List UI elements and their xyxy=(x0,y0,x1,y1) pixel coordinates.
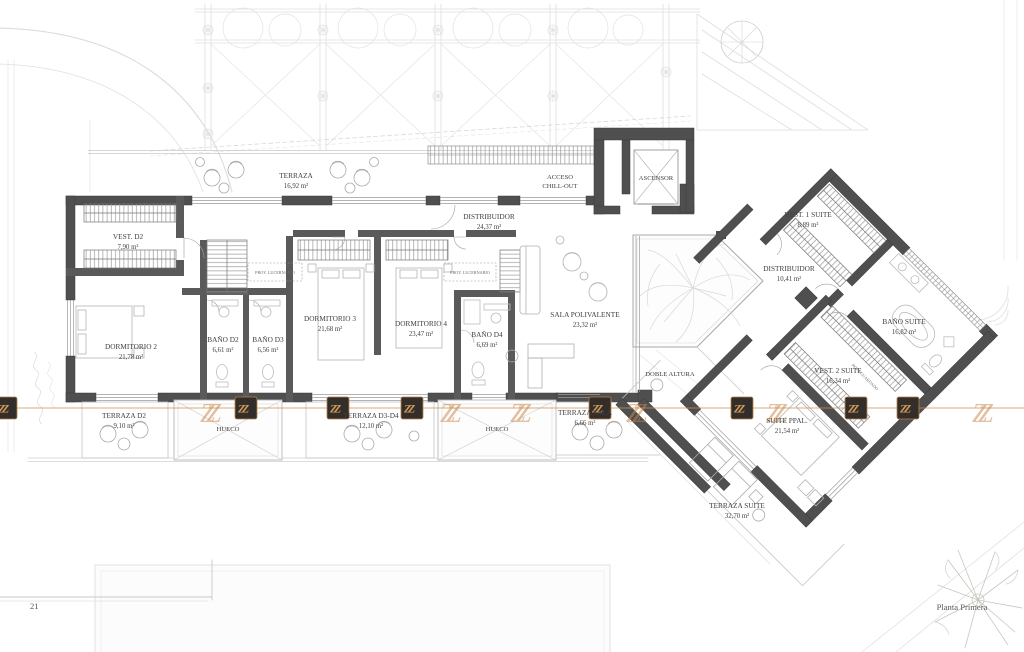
svg-text:21,68 m²: 21,68 m² xyxy=(318,326,342,333)
label-suite-ppal: SUITE PPAL. xyxy=(766,416,808,425)
svg-text:6,61 m²: 6,61 m² xyxy=(213,347,234,354)
svg-text:32,70 m²: 32,70 m² xyxy=(725,513,749,520)
garden-tree-icon xyxy=(935,550,1022,648)
svg-text:ZZ: ZZ xyxy=(972,398,994,428)
watermark-badge: ZZ xyxy=(897,397,919,419)
label-dormitorio-2: DORMITORIO 2 xyxy=(105,342,157,351)
watermark-badge: ZZ xyxy=(401,397,423,419)
watermark-badge: ZZ xyxy=(845,397,867,419)
label-ascensor: ASCENSOR xyxy=(639,175,674,182)
interior-walls xyxy=(66,196,516,402)
svg-text:10,41 m²: 10,41 m² xyxy=(777,276,801,283)
svg-text:9,10 m²: 9,10 m² xyxy=(114,423,135,430)
svg-text:24,37 m²: 24,37 m² xyxy=(477,224,501,231)
main-wing xyxy=(66,128,730,491)
svg-text:6,56 m²: 6,56 m² xyxy=(258,347,279,354)
svg-text:7,90 m²: 7,90 m² xyxy=(118,244,139,251)
elevator-block xyxy=(594,128,694,214)
watermark-badge: ZZ xyxy=(731,397,753,419)
label-terraza-d2: TERRAZA D2 xyxy=(102,411,146,420)
sheet-number: 21 xyxy=(30,601,39,611)
svg-text:16,82 m²: 16,82 m² xyxy=(892,329,916,336)
label-hueco-1: HUECO xyxy=(217,426,240,433)
label-proy-lucernario-2: PROY. LUCERNARIO xyxy=(450,270,490,275)
label-acceso-chillout: ACCESO xyxy=(547,174,573,181)
svg-text:8,89 m²: 8,89 m² xyxy=(798,222,819,229)
label-bano-d4: BAÑO D4 xyxy=(471,329,503,339)
svg-text:23,47 m²: 23,47 m² xyxy=(409,331,433,338)
watermark-badge: ZZ xyxy=(235,397,257,419)
label-bano-d2: BAÑO D2 xyxy=(207,334,239,344)
wardrobes xyxy=(84,204,520,294)
floor-plan-drawing: ZZ ZZ ZZ ZZ ZZ ZZ ZZ ZZ ZZ ZZ ZZ ZZ xyxy=(0,0,1024,652)
label-bano-d3: BAÑO D3 xyxy=(252,334,284,344)
sheet-title: Planta Primera xyxy=(937,602,988,612)
label-dormitorio-4: DORMITORIO 4 xyxy=(395,319,447,328)
svg-text:CHILL-OUT: CHILL-OUT xyxy=(542,183,577,190)
label-vest-d2: VEST. D2 xyxy=(113,232,144,241)
svg-text:12,10 m²: 12,10 m² xyxy=(359,423,383,430)
svg-text:23,32 m²: 23,32 m² xyxy=(573,322,597,329)
label-terraza-d3-d4: TERRAZA D3-D4 xyxy=(343,411,399,420)
svg-text:6,69 m²: 6,69 m² xyxy=(477,342,498,349)
svg-text:16,34 m²: 16,34 m² xyxy=(826,378,850,385)
floor-plan-sheet: ZZ ZZ ZZ ZZ ZZ ZZ ZZ ZZ ZZ ZZ ZZ ZZ xyxy=(0,0,1024,652)
label-bano-suite: BAÑO SUITE xyxy=(882,316,926,326)
svg-text:21,78 m²: 21,78 m² xyxy=(119,354,143,361)
label-terraza-sala: TERRAZA SALA xyxy=(558,408,613,417)
svg-text:6,66 m²: 6,66 m² xyxy=(575,420,596,427)
label-hueco-2: HUECO xyxy=(486,426,509,433)
label-distribuidor-suite: DISTRIBUIDOR xyxy=(763,264,815,273)
svg-text:16,92 m²: 16,92 m² xyxy=(284,183,308,190)
label-sala-polivalente: SALA POLIVALENTE xyxy=(550,310,620,319)
label-dormitorio-3: DORMITORIO 3 xyxy=(304,314,356,323)
label-doble-altura: DOBLE ALTURA xyxy=(645,371,695,378)
svg-text:21,54 m²: 21,54 m² xyxy=(775,428,799,435)
label-terraza-suite: TERRAZA SUITE xyxy=(709,501,765,510)
label-terraza: TERRAZA xyxy=(279,171,313,180)
label-proy-lucernario-1: PROY. LUCERNARIO xyxy=(255,270,295,275)
label-distribuidor: DISTRIBUIDOR xyxy=(463,212,515,221)
label-vest-1-suite: VEST. 1 SUITE xyxy=(784,210,832,219)
upper-terrace xyxy=(88,146,598,193)
watermark-badge: ZZ xyxy=(0,397,17,419)
